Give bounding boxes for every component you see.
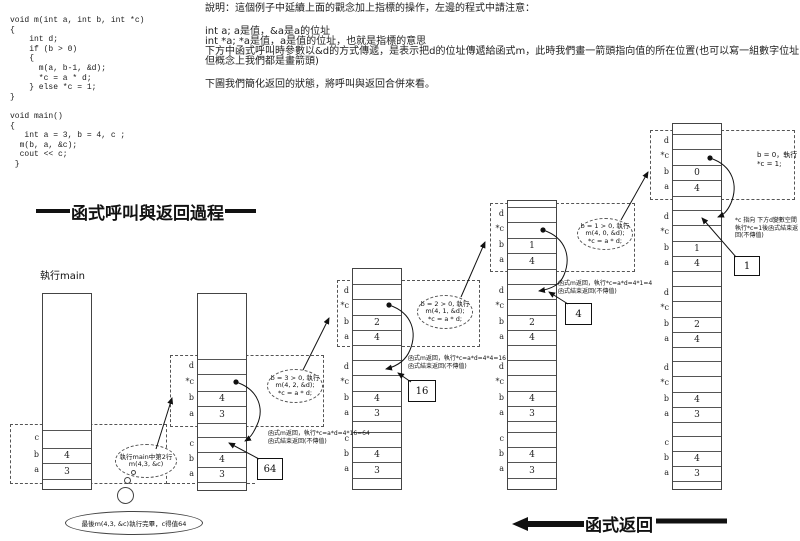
stack-cell-d	[673, 361, 721, 376]
stack-cell-a: 4	[353, 330, 401, 345]
stack-cell-ptr-c	[353, 375, 401, 391]
title-right-bar	[225, 209, 256, 213]
stack-cell-b: 4	[508, 391, 556, 406]
stack-cell-a: 4	[673, 256, 721, 271]
cell-label-b: b	[655, 167, 669, 176]
stack-cell-a: 3	[673, 407, 721, 422]
cell-label-b: b	[655, 319, 669, 328]
callout-line: *c = a * d;	[588, 238, 622, 246]
cell-label-a: a	[655, 334, 669, 343]
cell-label-ptr-c: *c	[655, 378, 669, 387]
stack-cell-ptr-c	[673, 149, 721, 165]
stack-cell-ptr-c	[673, 376, 721, 392]
stack-cell-empty	[673, 422, 721, 436]
cell-label-b: b	[180, 454, 194, 463]
stack-cell-d	[508, 284, 556, 299]
return-note-line: 執行*c=1後函式結束返	[735, 225, 798, 233]
stack-cell-empty	[508, 421, 556, 432]
cell-label-d: d	[655, 363, 669, 372]
return-note-3: 函式m返回，執行*c=a*d=4*1=4函式結束返回(不傳值)	[558, 280, 652, 295]
return-note-line: 函式m返回，執行*c=a*d=4*4=16	[408, 355, 506, 363]
stack-cell-a: 4	[673, 332, 721, 347]
stack-cell-b: 4	[673, 392, 721, 407]
stack-cell-ptr-c	[508, 299, 556, 315]
stack-cell-ptr-c	[673, 301, 721, 317]
stack-cell-b: 2	[508, 315, 556, 330]
cell-label-ptr-c: *c	[180, 377, 194, 386]
callout-ellipse-1: 執行main中第2行m(4,3, &c)	[115, 444, 177, 478]
cell-label-c: c	[655, 438, 669, 447]
stack-cell-d	[353, 284, 401, 299]
stack-column-call-m-4-3: 4343	[197, 293, 247, 491]
cell-label-a: a	[335, 408, 349, 417]
return-note-line: *c 指向 下方d變數空間	[735, 217, 798, 225]
stack-cell-b: 2	[673, 317, 721, 332]
cell-label-b: b	[180, 393, 194, 402]
stack-cell-a: 4	[673, 180, 721, 196]
stack-cell-ptr-c	[508, 375, 556, 391]
stack-cell-empty	[353, 269, 401, 284]
cell-label-d: d	[655, 288, 669, 297]
thought-circle	[131, 470, 136, 475]
stack-cell-d	[673, 134, 721, 149]
callout-ellipse-4: b = 1 > 0, 執行m(4, 0, &d);*c = a * d;	[577, 218, 633, 250]
base-case-note: b = 0，執行*c = 1;	[757, 151, 797, 169]
stack-cell-b: 2	[353, 315, 401, 330]
stack-cell-b: 1	[673, 241, 721, 256]
stack-cell-ptr-c	[353, 299, 401, 315]
cell-label-b: b	[490, 393, 504, 402]
explanation-line: 但概念上我們都是畫箭頭)	[205, 57, 797, 67]
cell-label-b: b	[25, 450, 39, 459]
stack-cell-ptr-c	[673, 225, 721, 241]
stack-cell-b: 4	[508, 447, 556, 462]
base-case-line: b = 0，執行	[757, 151, 797, 160]
return-note-line: 函式結束返回(不傳值)	[408, 363, 506, 371]
cell-label-a: a	[490, 408, 504, 417]
stack-cell-a: 3	[353, 406, 401, 421]
base-case-line: *c = 1;	[757, 160, 797, 169]
stack-cell-d	[353, 360, 401, 375]
stack-cell-c	[508, 432, 556, 447]
cell-label-d: d	[180, 361, 194, 370]
stack-cell-empty	[673, 124, 721, 134]
stack-cell-d	[673, 210, 721, 225]
cell-label-c: c	[25, 433, 39, 442]
stack-cell-d	[198, 359, 246, 374]
cell-label-d: d	[490, 286, 504, 295]
return-arrow-label: 函式返回	[585, 511, 653, 536]
cell-label-d: d	[655, 212, 669, 221]
stack-cell-empty	[673, 271, 721, 286]
cell-label-ptr-c: *c	[490, 377, 504, 386]
stack-cell-b: 4	[353, 447, 401, 462]
stack-cell-c	[673, 436, 721, 451]
stack-cell-empty	[198, 294, 246, 359]
cell-label-a: a	[655, 409, 669, 418]
explanation-text: 說明：這個例子中延續上面的觀念加上指標的操作，左邊的程式中請注意： int a;…	[205, 4, 797, 90]
cell-label-ptr-c: *c	[490, 301, 504, 310]
cell-label-a: a	[490, 332, 504, 341]
cell-label-b: b	[490, 449, 504, 458]
title-left-bar	[36, 209, 70, 213]
cell-label-b: b	[655, 453, 669, 462]
thought-circle	[124, 477, 131, 484]
callout-line: *c = a * d;	[278, 390, 312, 398]
cell-label-ptr-c: *c	[335, 301, 349, 310]
cell-label-a: a	[180, 409, 194, 418]
stack-cell-b: 4	[353, 391, 401, 406]
cell-label-d: d	[490, 209, 504, 218]
stack-cell-empty	[673, 196, 721, 210]
cell-label-a: a	[335, 464, 349, 473]
stack-cell-d	[673, 286, 721, 301]
stack-cell-empty	[353, 478, 401, 489]
stack-cell-empty	[508, 478, 556, 489]
cell-label-b: b	[655, 394, 669, 403]
document-page: { "code": {"text": "void m(int a, int b,…	[0, 0, 800, 541]
value-box-4: 4	[565, 303, 592, 325]
value-box-16: 16	[408, 380, 436, 402]
stack-column-call-m-4-2: 244343	[352, 268, 402, 490]
stack-cell-empty	[353, 345, 401, 360]
stack-cell-d	[508, 207, 556, 222]
stack-cell-ptr-c	[508, 222, 556, 238]
callout-ellipse-3: b = 2 > 0, 執行m(4, 1, &d);*c = a * d;	[417, 295, 473, 329]
stack-cell-empty	[43, 479, 91, 489]
stack-cell-b: 1	[508, 238, 556, 253]
source-code: void m(int a, int b, int *c) { int d; if…	[10, 16, 144, 170]
return-note-line: 函式結束返回(不傳值)	[268, 438, 370, 446]
stack-cell-a: 3	[353, 462, 401, 478]
cell-label-b: b	[335, 317, 349, 326]
exec-main-label: 執行main	[40, 267, 85, 282]
stack-cell-empty	[198, 482, 246, 490]
explanation-line: 說明：這個例子中延續上面的觀念加上指標的操作，左邊的程式中請注意：	[205, 4, 797, 14]
return-note-4: *c 指向 下方d變數空間執行*c=1後函式結束返回(不傳值)	[735, 217, 798, 240]
return-note-line: 函式m返回，執行*c=a*d=4*1=4	[558, 280, 652, 288]
cell-label-a: a	[335, 332, 349, 341]
stack-cell-a: 3	[508, 462, 556, 478]
return-note-1: 函式m返回，執行*c=a*d=4*16=64函式結束返回(不傳值)	[268, 430, 370, 445]
return-arrowhead	[512, 517, 528, 531]
stack-cell-ptr-c	[198, 374, 246, 391]
stack-cell-empty	[508, 345, 556, 360]
cell-label-b: b	[655, 243, 669, 252]
cell-label-b: b	[335, 449, 349, 458]
stack-cell-empty	[198, 423, 246, 437]
stack-cell-a: 3	[43, 463, 91, 479]
cell-label-a: a	[655, 468, 669, 477]
stack-cell-d	[508, 360, 556, 375]
cell-label-b: b	[335, 393, 349, 402]
stack-column-call-m-4-1: 14244343	[507, 200, 557, 490]
stack-cell-a: 4	[508, 253, 556, 269]
stack-cell-b: 4	[198, 391, 246, 406]
value-box-1: 1	[734, 256, 760, 276]
cell-label-b: b	[490, 240, 504, 249]
stack-cell-empty	[673, 347, 721, 361]
stack-cell-empty	[43, 294, 91, 430]
cell-label-d: d	[335, 362, 349, 371]
cell-label-ptr-c: *c	[655, 227, 669, 236]
value-box-64: 64	[257, 458, 283, 480]
return-note-line: 函式結束返回(不傳值)	[558, 288, 652, 296]
stack-cell-empty	[508, 269, 556, 284]
cell-label-a: a	[490, 255, 504, 264]
stack-cell-a: 3	[673, 466, 721, 481]
final-result-bubble: 最後m(4,3, &c)執行完畢，c得值64	[65, 511, 203, 535]
stack-cell-a: 3	[508, 406, 556, 421]
stack-cell-c	[43, 430, 91, 448]
cell-label-d: d	[655, 136, 669, 145]
final-result-text: 最後m(4,3, &c)執行完畢，c得值64	[82, 518, 187, 528]
stack-cell-a: 3	[198, 467, 246, 482]
cell-label-ptr-c: *c	[655, 151, 669, 160]
return-note-line: 回(不傳值)	[735, 232, 798, 240]
cell-label-c: c	[180, 439, 194, 448]
stack-cell-empty	[673, 481, 721, 489]
cell-label-d: d	[335, 286, 349, 295]
stack-cell-c	[198, 437, 246, 452]
stack-cell-b: 4	[43, 448, 91, 463]
stack-column-call-m-4-0: 0414244343	[672, 123, 722, 490]
stack-column-main: 43	[42, 293, 92, 490]
cell-label-a: a	[655, 258, 669, 267]
explanation-line: 下圖我們簡化返回的狀態，將呼叫與返回合併來看。	[205, 80, 797, 90]
return-note-2: 函式m返回，執行*c=a*d=4*4=16函式結束返回(不傳值)	[408, 355, 506, 370]
cell-label-b: b	[490, 317, 504, 326]
callout-ellipse-2: b = 3 > 0, 執行m(4, 2, &d);*c = a * d;	[267, 369, 323, 403]
cell-label-a: a	[25, 465, 39, 474]
stack-cell-b: 4	[198, 452, 246, 467]
stack-cell-a: 3	[198, 406, 246, 423]
cell-label-a: a	[490, 464, 504, 473]
stack-cell-b: 0	[673, 165, 721, 180]
section-title-row: 函式呼叫與返回過程	[36, 200, 256, 222]
return-note-line: 函式m返回，執行*c=a*d=4*16=64	[268, 430, 370, 438]
callout-line: *c = a * d;	[428, 316, 462, 324]
cell-label-a: a	[655, 182, 669, 191]
cell-label-ptr-c: *c	[335, 377, 349, 386]
section-title: 函式呼叫與返回過程	[71, 199, 224, 224]
cell-label-c: c	[490, 434, 504, 443]
cell-label-ptr-c: *c	[655, 303, 669, 312]
stack-cell-b: 4	[673, 451, 721, 466]
thought-circle	[117, 487, 134, 504]
callout-line: m(4,3, &c)	[129, 461, 164, 469]
stack-cell-a: 4	[508, 330, 556, 345]
cell-label-ptr-c: *c	[490, 224, 504, 233]
cell-label-a: a	[180, 469, 194, 478]
